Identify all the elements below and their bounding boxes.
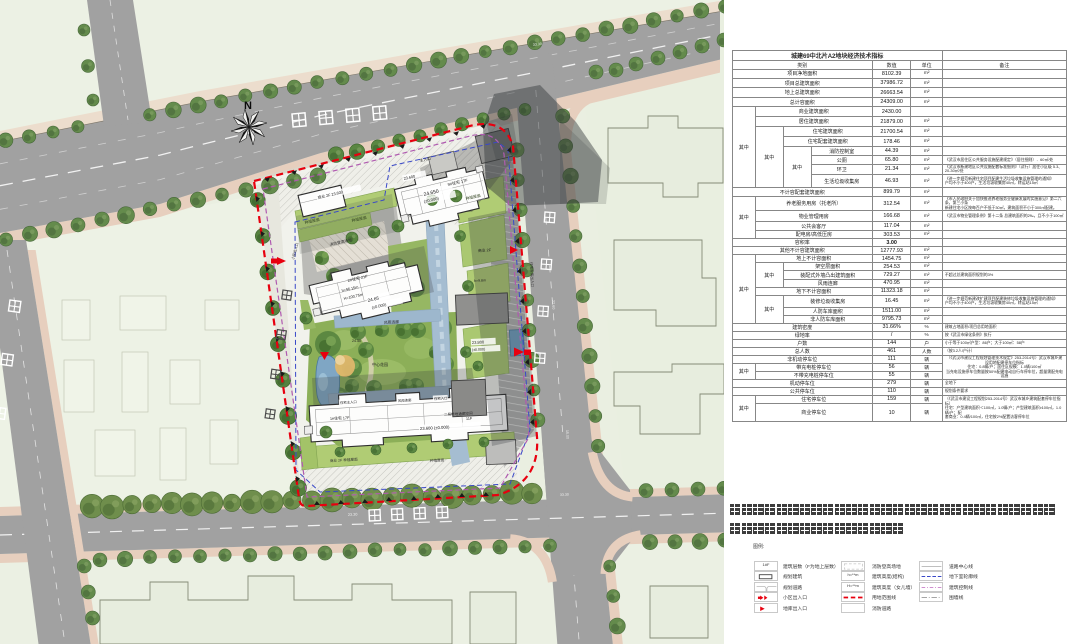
svg-text:11F: 11F <box>466 417 473 421</box>
svg-text:15.00: 15.00 <box>565 430 569 439</box>
svg-text:中心花园: 中心花园 <box>372 361 388 367</box>
svg-text:23.30: 23.30 <box>348 513 358 517</box>
svg-text:商业 2F: 商业 2F <box>478 247 492 253</box>
svg-text:N: N <box>244 100 252 112</box>
svg-text:h=9.8m: h=9.8m <box>474 278 486 283</box>
svg-text:24.50: 24.50 <box>352 339 361 343</box>
svg-text:住宅主入口: 住宅主入口 <box>340 399 357 405</box>
svg-text:33.30: 33.30 <box>560 493 569 497</box>
svg-text:住宅入口: 住宅入口 <box>434 395 448 401</box>
svg-text:种植屋面: 种植屋面 <box>430 457 445 463</box>
svg-text:风雨连廊: 风雨连廊 <box>398 397 412 403</box>
svg-text:23.800: 23.800 <box>472 339 485 345</box>
svg-text:22.60: 22.60 <box>551 300 555 310</box>
svg-text:(±0.000): (±0.000) <box>472 347 486 352</box>
svg-text:风雨连廊: 风雨连廊 <box>384 319 400 325</box>
